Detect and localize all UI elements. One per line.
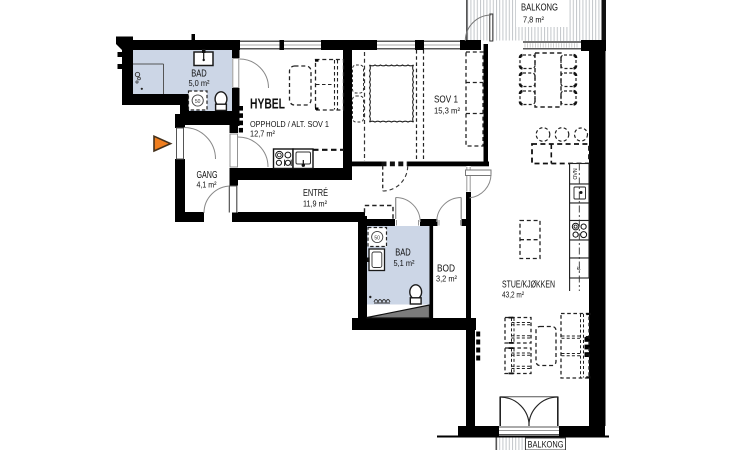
svg-text:15,3 m²: 15,3 m²: [434, 106, 460, 116]
svg-text:4,1 m²: 4,1 m²: [197, 180, 217, 190]
svg-text:11,9 m²: 11,9 m²: [303, 199, 327, 209]
svg-text:BAD: BAD: [395, 248, 411, 259]
svg-text:OVN: OVN: [573, 168, 579, 179]
svg-text:43,2 m²: 43,2 m²: [502, 290, 524, 300]
svg-text:ENTRÉ: ENTRÉ: [303, 186, 328, 199]
svg-text:5,0 m²: 5,0 m²: [189, 78, 210, 88]
svg-text:BALKONG: BALKONG: [521, 3, 558, 14]
svg-text:OPPHOLD / ALT. SOV 1: OPPHOLD / ALT. SOV 1: [250, 119, 329, 129]
svg-text:12,7 m²: 12,7 m²: [250, 129, 275, 139]
svg-text:7,8 m²: 7,8 m²: [523, 15, 544, 25]
svg-text:50: 50: [195, 99, 201, 105]
svg-text:SOV 1: SOV 1: [434, 95, 458, 106]
svg-text:BALKONG: BALKONG: [528, 440, 564, 450]
svg-text:50: 50: [374, 236, 380, 242]
svg-text:5,1 m²: 5,1 m²: [394, 258, 415, 268]
svg-text:HYBEL: HYBEL: [250, 97, 285, 113]
svg-text:3,2 m²: 3,2 m²: [436, 274, 457, 284]
